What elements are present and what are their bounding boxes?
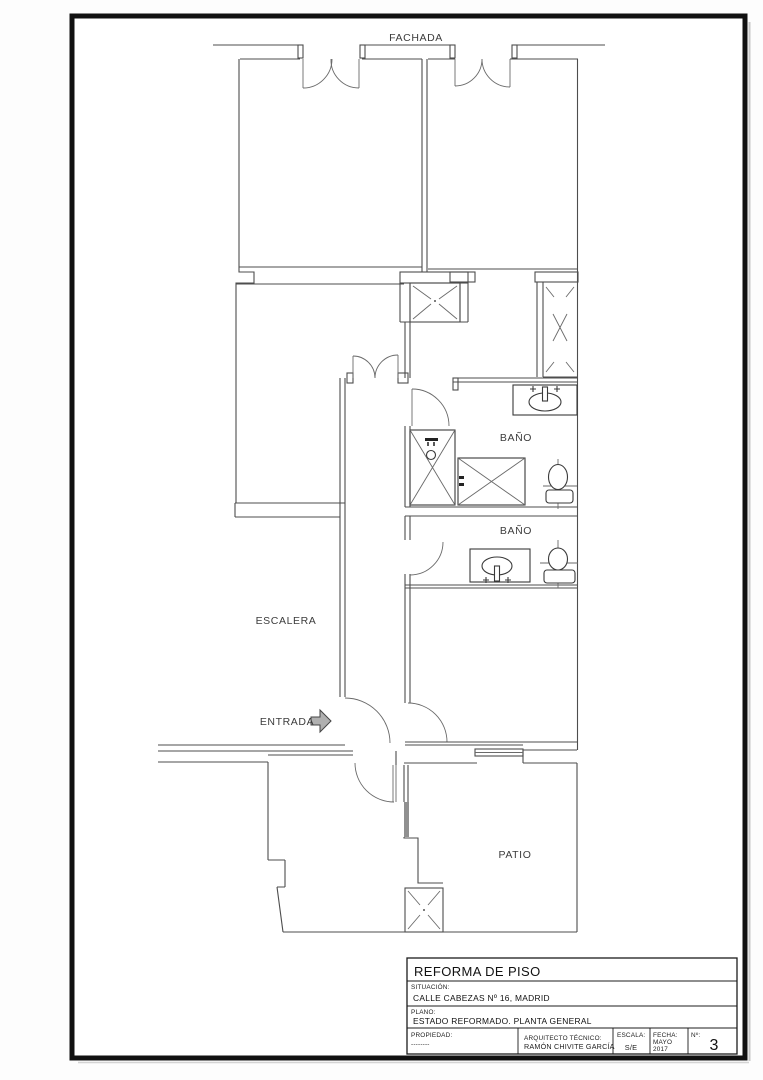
bano1-label: BAÑO xyxy=(500,431,532,444)
bano2-label: BAÑO xyxy=(500,524,532,537)
arquitecto-label: ARQUITECTO TÉCNICO: xyxy=(524,1033,602,1042)
escala-value: S/E xyxy=(625,1043,638,1052)
situacion-label: SITUACIÓN: xyxy=(411,982,450,991)
numero-value: 3 xyxy=(710,1037,719,1054)
plano-label: PLANO: xyxy=(411,1009,436,1016)
patio-label: PATIO xyxy=(499,849,532,861)
fecha-value-month: MAYO xyxy=(653,1039,672,1046)
page-border xyxy=(72,16,750,1063)
escalera-label: ESCALERA xyxy=(256,615,317,627)
fecha-value-year: 2017 xyxy=(653,1046,668,1053)
entrada-label: ENTRADA xyxy=(260,716,314,728)
numero-label: Nº: xyxy=(691,1032,700,1039)
propiedad-value: -------- xyxy=(411,1041,430,1048)
drawing-sheet: FACHADA ESCALERA ENTRADA BAÑO BAÑO PATIO… xyxy=(0,0,763,1080)
title-text: REFORMA DE PISO xyxy=(414,964,541,979)
situacion-value: CALLE CABEZAS Nº 16, MADRID xyxy=(413,993,550,1003)
floor-plan: FACHADA ESCALERA ENTRADA BAÑO BAÑO PATIO… xyxy=(0,0,763,1080)
propiedad-label: PROPIEDAD: xyxy=(411,1032,452,1039)
escala-label: ESCALA: xyxy=(617,1032,645,1039)
fachada-label: FACHADA xyxy=(389,32,443,44)
plano-value: ESTADO REFORMADO. PLANTA GENERAL xyxy=(413,1016,592,1026)
fecha-label: FECHA: xyxy=(653,1032,678,1039)
hatched-wall xyxy=(404,802,409,837)
arquitecto-value: RAMÓN CHIVITE GARCÍA xyxy=(524,1042,615,1051)
